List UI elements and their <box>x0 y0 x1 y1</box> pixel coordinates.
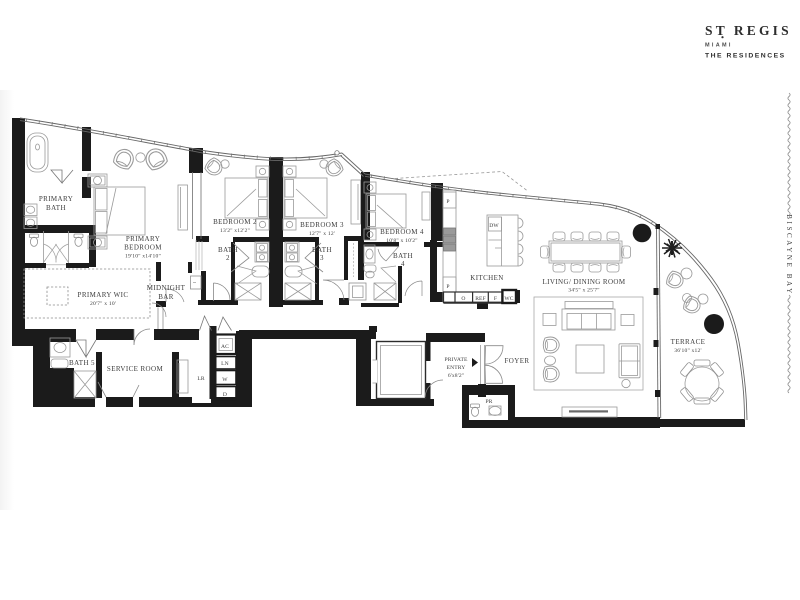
svg-text:FOYER: FOYER <box>505 357 530 365</box>
svg-text:BATH: BATH <box>393 252 413 260</box>
svg-text:20'7" x 10': 20'7" x 10' <box>90 301 116 307</box>
svg-text:SERVICE ROOM: SERVICE ROOM <box>107 365 164 373</box>
svg-text:BATH: BATH <box>312 246 332 254</box>
svg-text:D: D <box>223 392 227 398</box>
svg-text:BEDROOM 3: BEDROOM 3 <box>300 221 344 229</box>
svg-text:P: P <box>446 199 449 205</box>
svg-text:34'5" x 25'7": 34'5" x 25'7" <box>568 288 600 294</box>
svg-text:BEDROOM: BEDROOM <box>124 244 162 252</box>
svg-text:BATH: BATH <box>46 204 66 212</box>
svg-text:F: F <box>494 296 497 302</box>
svg-text:19'10" x14'10": 19'10" x14'10" <box>125 254 161 260</box>
svg-text:DW: DW <box>489 223 499 229</box>
svg-text:TERRACE: TERRACE <box>671 338 706 346</box>
svg-text:W: W <box>222 377 228 383</box>
svg-text:BATH: BATH <box>218 246 238 254</box>
svg-text:BEDROOM 4: BEDROOM 4 <box>380 228 424 236</box>
svg-text:ENTRY: ENTRY <box>447 365 466 371</box>
svg-text:PRIVATE: PRIVATE <box>445 357 468 363</box>
svg-text:6'x8'2": 6'x8'2" <box>448 373 464 379</box>
svg-text:LR: LR <box>197 376 205 382</box>
svg-text:PRIMARY WIC: PRIMARY WIC <box>78 291 129 299</box>
svg-text:BAR: BAR <box>158 293 174 301</box>
svg-text:2: 2 <box>226 254 230 262</box>
svg-text:KITCHEN: KITCHEN <box>470 274 504 282</box>
svg-text:PR: PR <box>485 399 492 405</box>
svg-text:LIVING/ DINING ROOM: LIVING/ DINING ROOM <box>542 278 625 286</box>
svg-text:36'10" x12': 36'10" x12' <box>674 348 701 354</box>
svg-text:3: 3 <box>320 254 324 262</box>
svg-text:LN: LN <box>221 361 229 367</box>
svg-text:THE RESIDENCES: THE RESIDENCES <box>705 53 786 60</box>
svg-text:PRIMARY: PRIMARY <box>39 195 73 203</box>
svg-text:12'7" x 12': 12'7" x 12' <box>309 231 335 237</box>
svg-text:10'8" x 10'2": 10'8" x 10'2" <box>386 238 418 244</box>
svg-text:MIAMI: MIAMI <box>705 43 733 49</box>
svg-text:P: P <box>446 284 449 290</box>
svg-text:MIDNIGHT: MIDNIGHT <box>147 284 186 292</box>
svg-text:O: O <box>461 296 465 302</box>
svg-text:BATH 5: BATH 5 <box>69 359 95 367</box>
svg-text:ST REGIS: ST REGIS <box>705 23 792 38</box>
svg-text:WC: WC <box>504 296 513 302</box>
svg-text:REF: REF <box>475 296 486 302</box>
svg-text:AC: AC <box>221 344 229 350</box>
svg-text:BISCAYNE BAY: BISCAYNE BAY <box>785 214 793 295</box>
svg-text:BEDROOM 2: BEDROOM 2 <box>213 218 257 226</box>
svg-text:13'2" x12'2": 13'2" x12'2" <box>220 228 250 234</box>
svg-text:PRIMARY: PRIMARY <box>126 235 160 243</box>
svg-text:4: 4 <box>401 260 405 268</box>
